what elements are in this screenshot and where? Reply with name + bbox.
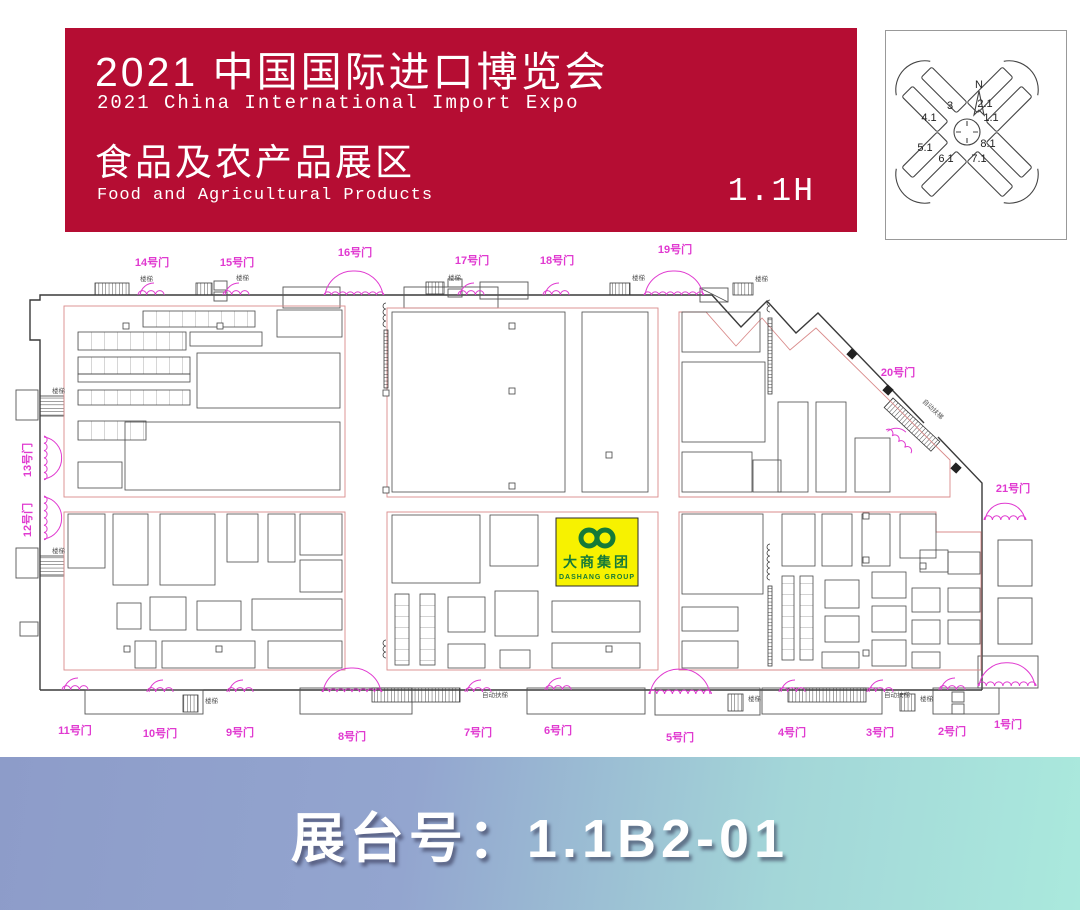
poster: 2021 中国国际进口博览会 2021 China International … xyxy=(0,0,1080,910)
facility-label: 自动扶梯 xyxy=(921,397,947,422)
facility-label: 楼梯 xyxy=(748,694,762,703)
gate-label: 2号门 xyxy=(938,724,966,738)
header-banner: 2021 中国国际进口博览会 2021 China International … xyxy=(65,28,857,232)
gate-16号门: 16号门 xyxy=(324,245,384,295)
hall-label-3: 3 xyxy=(947,100,953,112)
facility-label: 楼梯 xyxy=(448,273,462,282)
gate-label: 20号门 xyxy=(881,365,915,379)
facility-label: 楼梯 xyxy=(920,694,934,703)
corridor-partitions xyxy=(383,300,772,666)
gate-label: 16号门 xyxy=(338,245,372,259)
subtitle-en: Food and Agricultural Products xyxy=(97,186,433,205)
hall-number: 1.1H xyxy=(728,173,815,210)
hall-label-8-1: 8.1 xyxy=(980,138,995,150)
gate-label: 21号门 xyxy=(996,481,1030,495)
venue-overview-map: N 3 2.1 4.1 1.1 5.1 8.1 6.1 7.1 xyxy=(885,30,1067,240)
gate-label: 6号门 xyxy=(544,723,572,737)
title-cn: 2021 中国国际进口博览会 xyxy=(95,38,609,98)
facility-label: 楼梯 xyxy=(140,274,154,283)
gate-7号门: 7号门 xyxy=(464,680,492,739)
facility-label: 楼梯 xyxy=(632,273,646,282)
gate-label: 19号门 xyxy=(658,242,692,256)
hall-label-5-1: 5.1 xyxy=(917,142,932,154)
gate-label: 4号门 xyxy=(778,725,806,739)
facility-label: 楼梯 xyxy=(755,274,769,283)
gate-10号门: 10号门 xyxy=(143,680,177,740)
gate-9号门: 9号门 xyxy=(226,680,254,739)
gate-label: 3号门 xyxy=(866,725,894,739)
facility-label: 楼梯 xyxy=(52,546,66,555)
gate-label: 12号门 xyxy=(20,503,34,537)
highlight-booth-dashang: 大商集团 DASHANG GROUP xyxy=(556,518,638,586)
gate-label: 7号门 xyxy=(464,725,492,739)
hall-outer-walls xyxy=(30,295,982,690)
bottom-lobbies xyxy=(85,656,1038,715)
gate-12号门: 12号门 xyxy=(20,496,62,540)
gate-6号门: 6号门 xyxy=(544,678,572,737)
gate-18号门: 18号门 xyxy=(540,253,574,295)
gate-label: 10号门 xyxy=(143,726,177,740)
aisle-boundaries xyxy=(64,306,981,670)
gate-14号门: 14号门 xyxy=(135,255,169,295)
gate-label: 15号门 xyxy=(220,255,254,269)
gate-label: 9号门 xyxy=(226,725,254,739)
gate-label: 8号门 xyxy=(338,729,366,743)
gate-label: 1号门 xyxy=(994,717,1022,731)
facility-label: 楼梯 xyxy=(205,696,219,705)
facility-label: 自动扶梯 xyxy=(482,690,509,699)
hall-label-4-1: 4.1 xyxy=(921,112,936,124)
gate-11号门: 11号门 xyxy=(58,678,92,737)
gate-label: 14号门 xyxy=(135,255,169,269)
facility-label: 自动扶梯 xyxy=(884,690,911,699)
gate-1号门: 1号门 xyxy=(978,663,1036,731)
facility-label: 楼梯 xyxy=(236,273,250,282)
gate-label: 17号门 xyxy=(455,253,489,267)
gate-21号门: 21号门 xyxy=(984,481,1030,520)
gate-5号门: 5号门 xyxy=(649,669,711,744)
gate-label: 5号门 xyxy=(666,730,694,744)
gate-13号门: 13号门 xyxy=(20,436,62,480)
gate-19号门: 19号门 xyxy=(644,242,704,295)
subtitle-cn: 食品及农产品展区 xyxy=(95,132,415,186)
booth-name-cn: 大商集团 xyxy=(563,554,631,570)
gate-3号门: 3号门 xyxy=(866,680,894,739)
hall-label-2-1: 2.1 xyxy=(977,98,992,110)
facility-label: 楼梯 xyxy=(52,386,66,395)
hall-label-7-1: 7.1 xyxy=(971,153,986,165)
footer-banner: 展台号：1.1B2-01 xyxy=(0,757,1080,910)
arm-east xyxy=(965,130,1047,212)
gate-label: 18号门 xyxy=(540,253,574,267)
floor-plan: 大商集团 DASHANG GROUP 14号门15号门16号门17号门18号门1… xyxy=(0,240,1080,760)
arm-north xyxy=(965,52,1047,134)
hall-label-6-1: 6.1 xyxy=(938,153,953,165)
north-label: N xyxy=(975,79,983,91)
booth-number-label: 展台号：1.1B2-01 xyxy=(291,794,789,873)
booths xyxy=(68,310,980,668)
booth-name-en: DASHANG GROUP xyxy=(559,574,635,581)
gate-label: 13号门 xyxy=(20,443,34,477)
gate-label: 11号门 xyxy=(58,723,92,737)
gate-8号门: 8号门 xyxy=(322,668,382,743)
title-en: 2021 China International Import Expo xyxy=(97,92,579,114)
hall-label-1-1: 1.1 xyxy=(983,112,998,124)
